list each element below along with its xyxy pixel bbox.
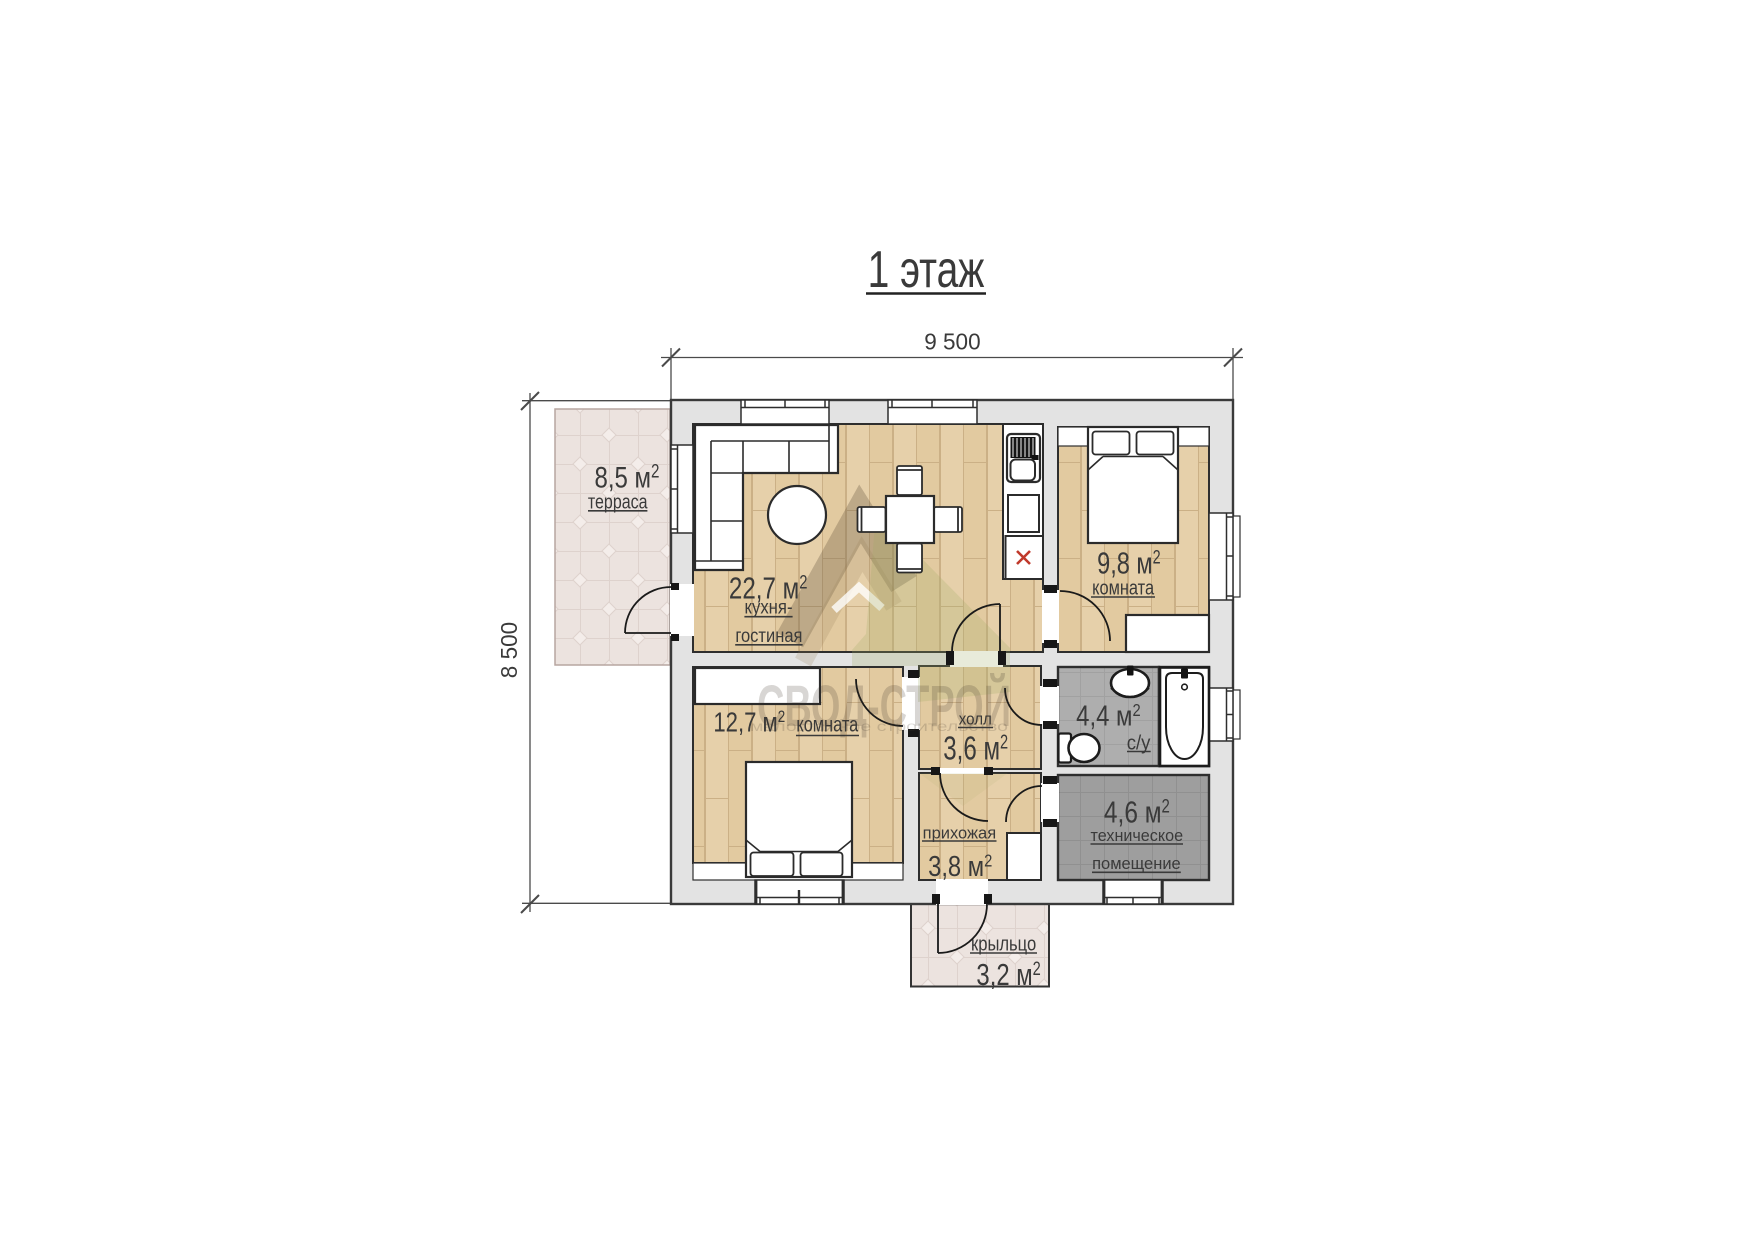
svg-text:комната: комната [1092,576,1155,599]
svg-text:крыльцо: крыльцо [971,932,1036,955]
svg-text:терраса: терраса [588,491,648,513]
svg-text:помещение: помещение [1092,854,1181,873]
svg-text:1 этаж: 1 этаж [868,239,985,298]
svg-text:9 500: 9 500 [924,328,980,354]
svg-text:техническое: техническое [1091,826,1184,845]
svg-text:гостиная: гостиная [735,625,802,646]
svg-text:3,2 м2: 3,2 м2 [976,957,1040,992]
svg-text:3,8 м2: 3,8 м2 [928,850,992,883]
svg-text:8 500: 8 500 [496,622,522,678]
svg-text:8,5 м2: 8,5 м2 [595,460,660,494]
svg-text:4,4 м2: 4,4 м2 [1076,700,1141,732]
svg-text:4,6 м2: 4,6 м2 [1104,795,1170,829]
svg-text:прихожая: прихожая [923,825,997,843]
svg-text:малоэтажное строительство: малоэтажное строительство [750,718,1008,734]
svg-text:кухня-: кухня- [744,597,792,618]
